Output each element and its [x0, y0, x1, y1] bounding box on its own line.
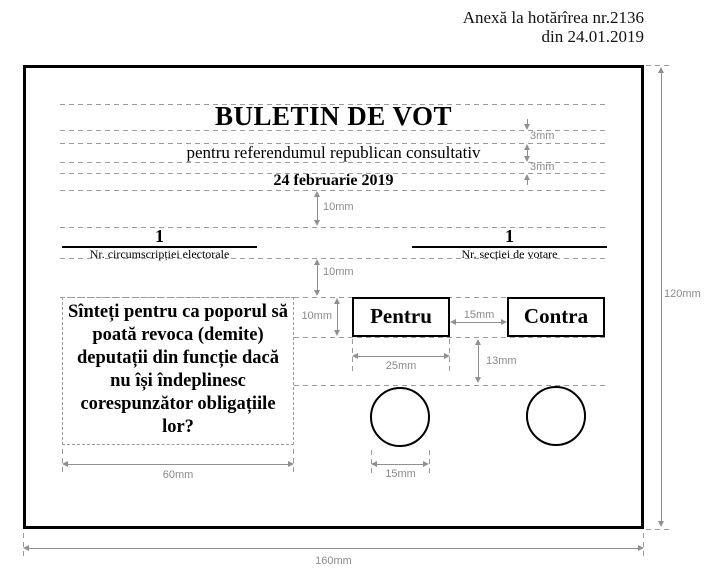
ballot-subtitle: pentru referendumul republican consultat…: [23, 143, 644, 162]
arrowhead-down-icon: [334, 330, 340, 336]
arrowhead-down-icon: [475, 377, 481, 383]
question-line: deputații din funcție dacă: [63, 347, 293, 370]
arrowhead-down-icon: [314, 220, 320, 226]
vote-circle-pentru: [370, 387, 430, 447]
question-line: Sînteți pentru ca poporul să: [63, 301, 293, 324]
arrowhead-down-icon: [658, 521, 664, 527]
annex-line-2: din 24.01.2019: [463, 27, 644, 46]
dimension-label: 15mm: [452, 309, 506, 321]
polling-station-number: 1: [412, 226, 607, 247]
ballot-date: 24 februarie 2019: [23, 172, 644, 190]
dimension-label: 120mm: [664, 288, 701, 300]
dashed-guide-line: [60, 162, 607, 163]
dimension-label: 25mm: [352, 360, 450, 372]
question-line: poată revoca (demite): [63, 324, 293, 347]
arrowhead-right-icon: [288, 461, 294, 467]
annex-note: Anexă la hotărîrea nr.2136 din 24.01.201…: [463, 8, 644, 46]
arrowhead-down-icon: [314, 290, 320, 296]
arrowhead-right-icon: [638, 545, 644, 551]
dimension-label: 160mm: [23, 555, 644, 567]
question-line: nu își îndeplinesc: [63, 370, 293, 393]
arrowhead-right-icon: [444, 353, 450, 359]
dimension-label: 10mm: [323, 266, 354, 278]
dimension-label: 15mm: [371, 468, 430, 480]
dimension-label: 60mm: [62, 469, 294, 481]
arrowhead-right-icon: [423, 461, 429, 467]
vote-circle-contra: [526, 386, 586, 446]
constituency-number: 1: [62, 226, 257, 247]
dashed-guide-line: [294, 337, 607, 338]
question-line: lor?: [63, 416, 293, 439]
polling-station-label: Nr. secției de votare: [412, 248, 607, 261]
dimension-label: 3mm: [530, 161, 554, 173]
annex-line-1: Anexă la hotărîrea nr.2136: [463, 8, 644, 27]
constituency-label: Nr. circumscripției electorale: [62, 248, 257, 261]
dashed-guide-line: [60, 190, 607, 191]
dimension-label: 13mm: [486, 355, 517, 367]
dimension-label: 10mm: [323, 201, 354, 213]
question-box: Sînteți pentru ca poporul să poată revoc…: [62, 297, 294, 445]
question-line: corespunzător obligațiile: [63, 393, 293, 416]
dimension-label: 3mm: [530, 130, 554, 142]
dimension-label: 10mm: [288, 310, 332, 322]
page: Anexă la hotărîrea nr.2136 din 24.01.201…: [0, 0, 720, 582]
option-box-contra: Contra: [507, 297, 605, 337]
ballot-title: BULETIN DE VOT: [23, 103, 644, 130]
option-box-pentru: Pentru: [352, 297, 450, 337]
